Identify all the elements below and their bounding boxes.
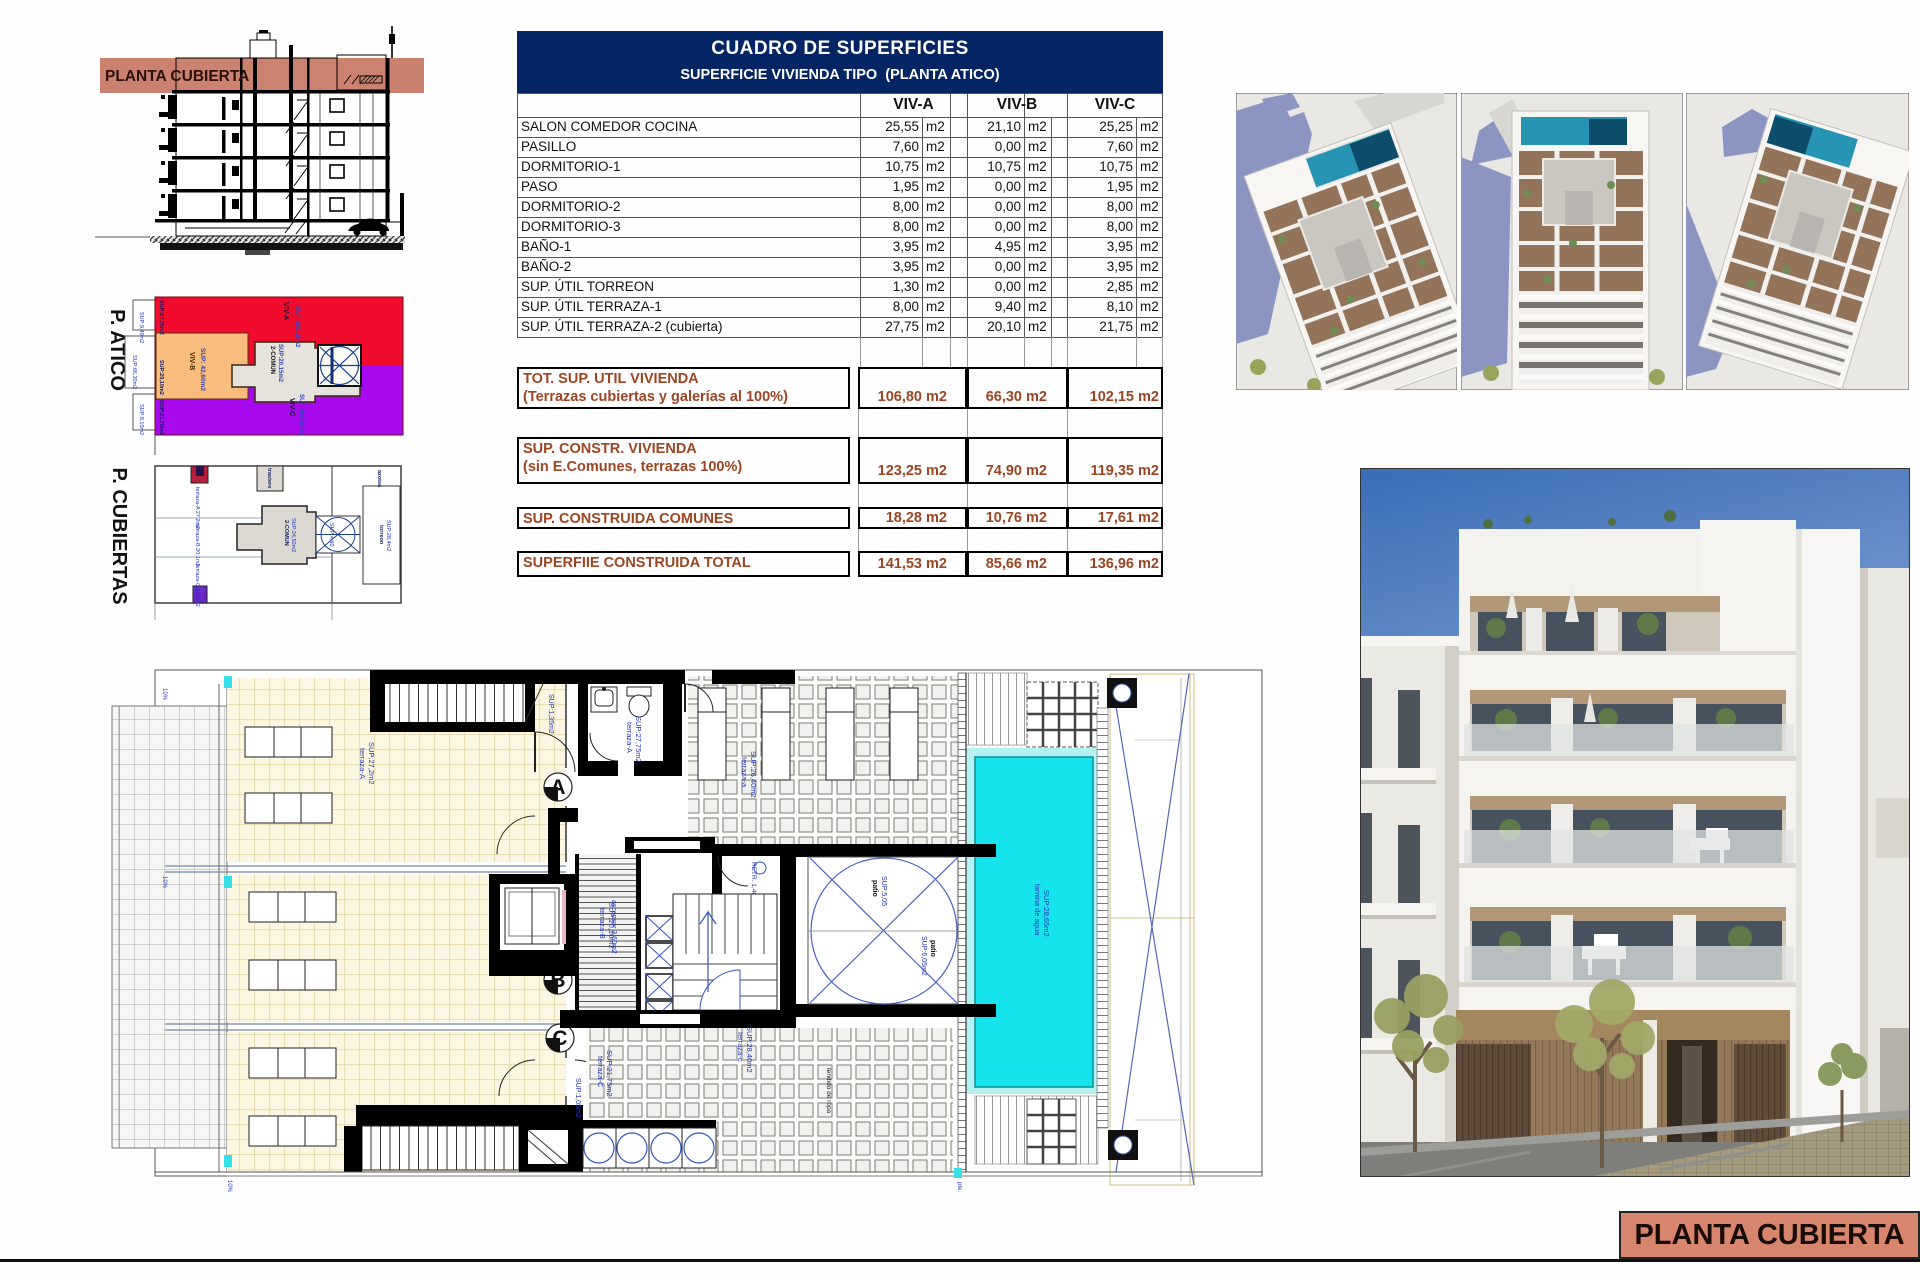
svg-text:PLANTA CUBIERTA: PLANTA CUBIERTA bbox=[105, 68, 249, 85]
svg-text:terraza-B 20,1m2: terraza-B 20,1m2 bbox=[194, 524, 200, 567]
svg-text:VIV-A: VIV-A bbox=[282, 302, 289, 320]
svg-text:SUP:20,15m2: SUP:20,15m2 bbox=[277, 344, 283, 383]
svg-text:SUP:28,4m2: SUP:28,4m2 bbox=[385, 520, 391, 551]
svg-text:RETR. 1,40: RETR. 1,40 bbox=[750, 862, 757, 896]
svg-text:2-COMUN: 2-COMUN bbox=[269, 346, 275, 374]
svg-text:SUP:6,05m2: SUP:6,05m2 bbox=[920, 936, 927, 976]
svg-text:SUP:28,40m2: SUP:28,40m2 bbox=[745, 1026, 754, 1073]
svg-text:terraza-c: terraza-c bbox=[736, 1032, 745, 1062]
svg-text:SUP:4,90: SUP:4,90 bbox=[328, 523, 334, 547]
svg-text:patio: patio bbox=[929, 940, 936, 957]
svg-text:SUP:5,05: SUP:5,05 bbox=[880, 876, 887, 906]
svg-text:10%: 10% bbox=[226, 1180, 232, 1193]
svg-text:trastero: trastero bbox=[266, 468, 272, 489]
svg-text:terraza-A: terraza-A bbox=[358, 748, 367, 779]
svg-text:azotea: azotea bbox=[376, 470, 382, 488]
svg-text:terraza-C: terraza-C bbox=[596, 1056, 605, 1088]
svg-text:SUP:24,50m2: SUP:24,50m2 bbox=[290, 518, 296, 552]
svg-text:VIV-C: VIV-C bbox=[288, 398, 295, 416]
svg-text:SUP:21,75m2: SUP:21,75m2 bbox=[605, 1050, 614, 1097]
svg-text:patio: patio bbox=[871, 880, 878, 897]
svg-text:SUP:9,40m2: SUP:9,40m2 bbox=[138, 312, 144, 343]
svg-text:terraza-a: terraza-a bbox=[740, 757, 749, 788]
svg-text:VIV-B: VIV-B bbox=[188, 352, 195, 370]
svg-text:terraza-C 21,7m2: terraza-C 21,7m2 bbox=[194, 564, 200, 607]
svg-text:SUP:26,40m2: SUP:26,40m2 bbox=[749, 751, 758, 798]
svg-text:pte.: pte. bbox=[956, 1182, 962, 1192]
svg-text:P. CUBIERTAS: P. CUBIERTAS bbox=[108, 467, 130, 604]
svg-text:lamina de agua: lamina de agua bbox=[1033, 884, 1042, 936]
svg-text:2-COMUN: 2-COMUN bbox=[283, 520, 289, 546]
svg-text:SUP:66,30m2: SUP:66,30m2 bbox=[131, 355, 137, 389]
svg-text:SUP:106,80m2: SUP:106,80m2 bbox=[298, 394, 304, 436]
svg-text:tendido de ropa: tendido de ropa bbox=[825, 1068, 832, 1114]
svg-text:SUP: 42,60m2: SUP: 42,60m2 bbox=[199, 348, 206, 391]
svg-text:SUP:20,10m2: SUP:20,10m2 bbox=[607, 902, 616, 949]
svg-text:terraza-A 27,2m2: terraza-A 27,2m2 bbox=[194, 487, 200, 529]
svg-text:SUP:28,65m2: SUP:28,65m2 bbox=[1042, 890, 1051, 937]
svg-text:SUP:27,75m2: SUP:27,75m2 bbox=[158, 300, 164, 335]
svg-text:SUP:8,10m2: SUP:8,10m2 bbox=[138, 404, 144, 435]
svg-text:SUP:20,10m2: SUP:20,10m2 bbox=[158, 360, 164, 395]
svg-text:10%: 10% bbox=[161, 876, 167, 889]
svg-text:SUP:21,75m2: SUP:21,75m2 bbox=[158, 400, 164, 435]
svg-text:SUP:1,05m2: SUP:1,05m2 bbox=[574, 1078, 581, 1118]
svg-text:SUP:102,15m2: SUP:102,15m2 bbox=[294, 306, 300, 348]
svg-text:SUP:27,2m2: SUP:27,2m2 bbox=[367, 742, 376, 785]
svg-text:terraza-A: terraza-A bbox=[625, 722, 634, 753]
svg-text:terraza-B: terraza-B bbox=[598, 908, 607, 939]
svg-text:SUP:1,35m2: SUP:1,35m2 bbox=[547, 694, 554, 734]
svg-text:10%: 10% bbox=[161, 688, 167, 701]
svg-text:torreon: torreon bbox=[378, 525, 384, 545]
svg-text:SUP:27,75m2: SUP:27,75m2 bbox=[634, 716, 643, 763]
